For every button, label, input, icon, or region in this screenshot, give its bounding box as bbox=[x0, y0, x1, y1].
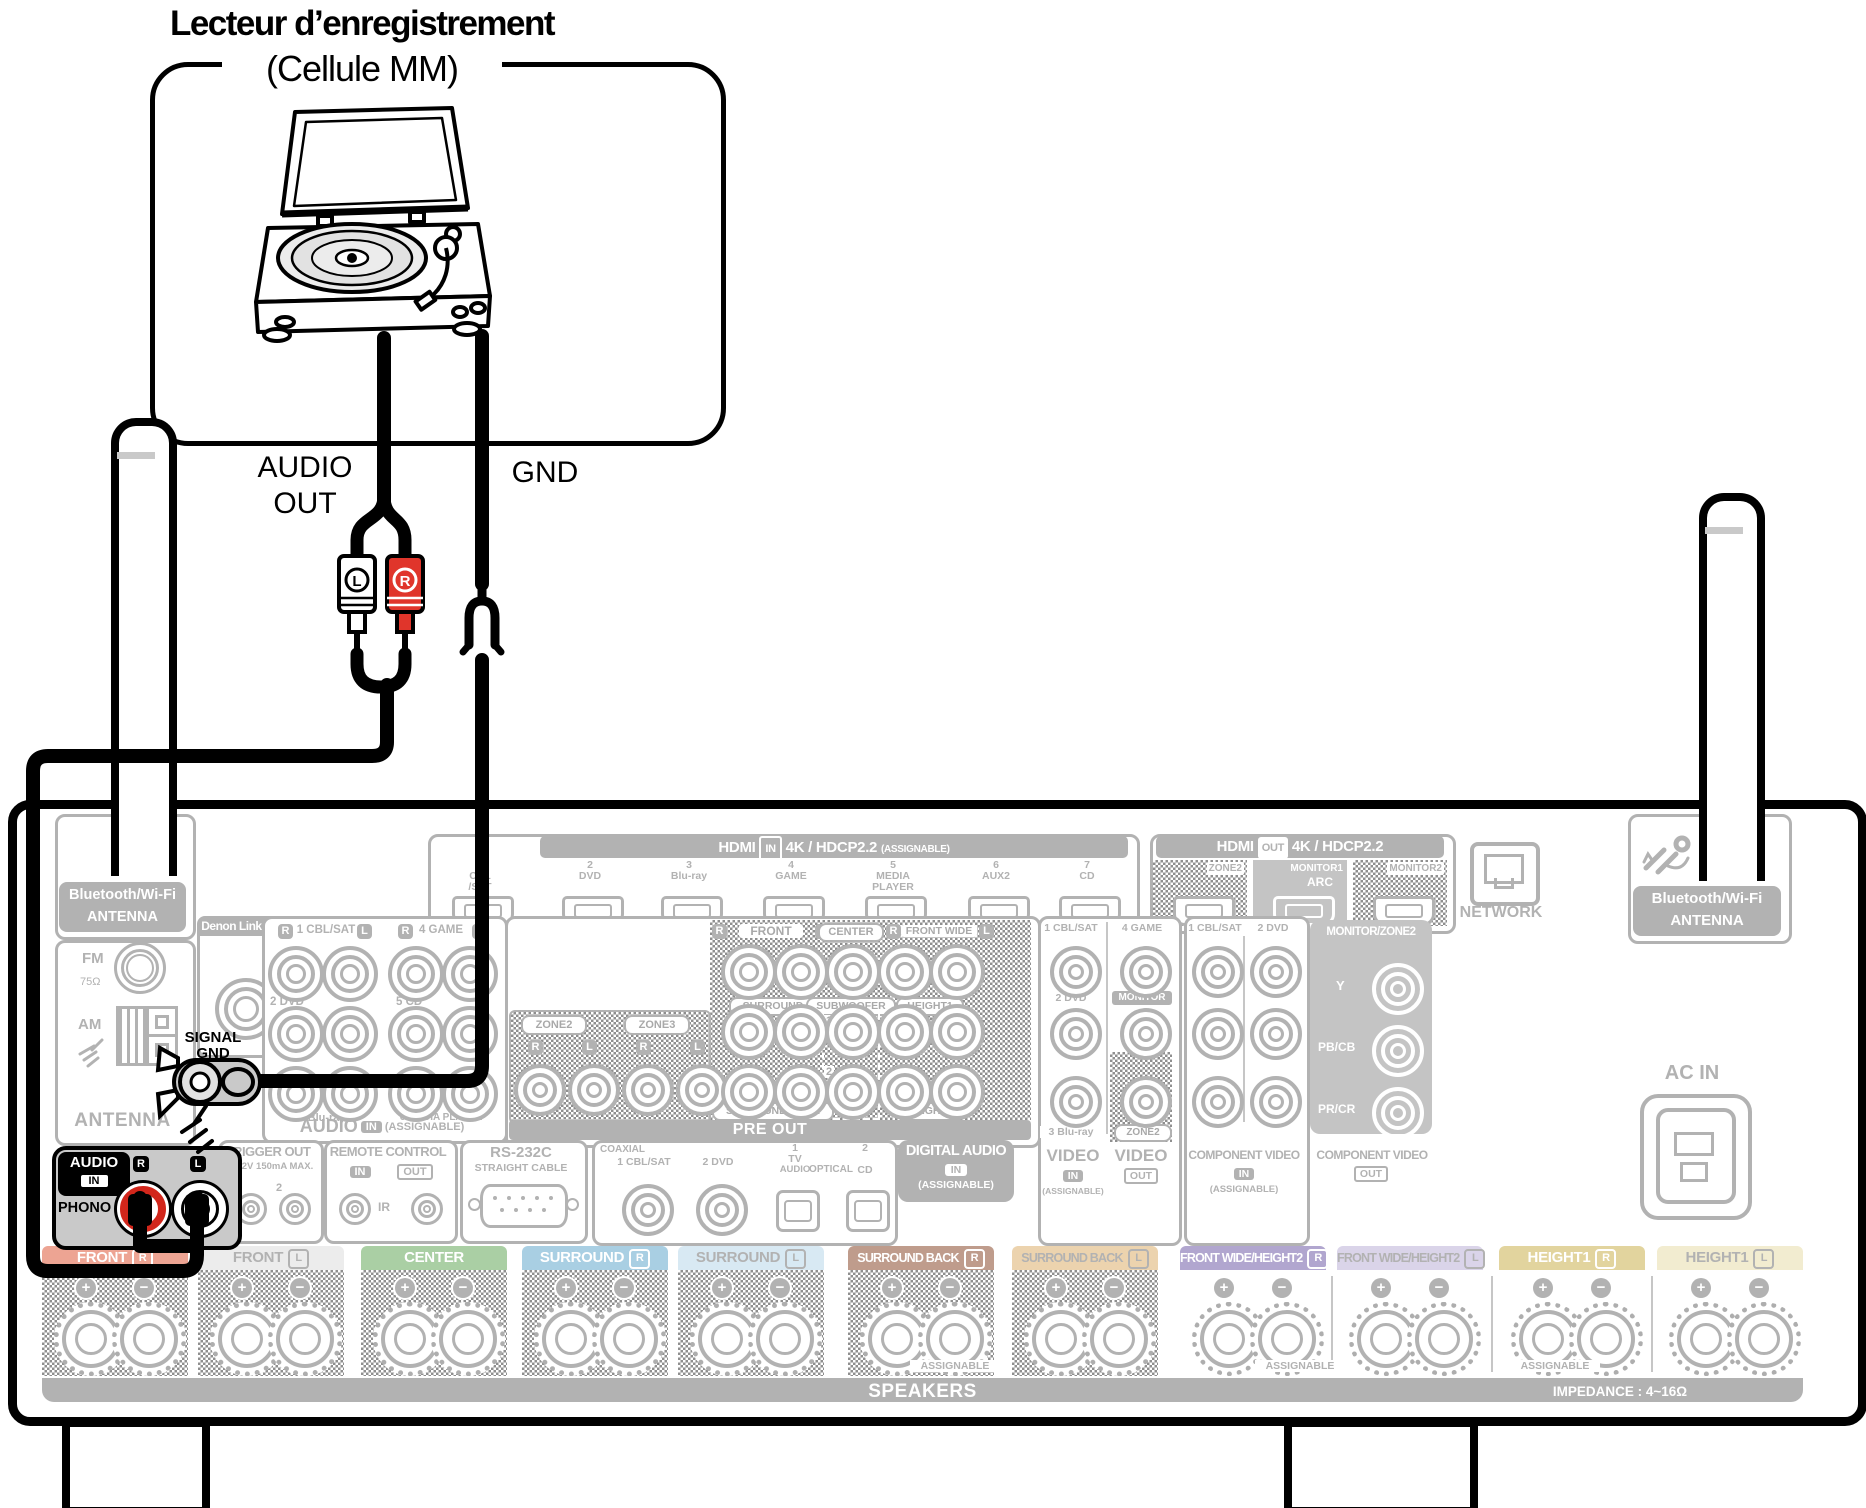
phono-plug-r bbox=[128, 1194, 152, 1226]
signal-gnd-terminal bbox=[158, 1048, 260, 1116]
rca-plug-right: R bbox=[387, 556, 423, 650]
ground-symbol-icon bbox=[182, 1106, 212, 1152]
svg-text:L: L bbox=[352, 573, 361, 590]
phono-plug-l bbox=[185, 1194, 209, 1226]
svg-text:R: R bbox=[400, 573, 411, 590]
rca-plug-left: L bbox=[339, 556, 375, 650]
connection-diagram: Lecteur d’enregistrement (Cellule MM) bbox=[0, 0, 1866, 1508]
cables-overlay: L R bbox=[0, 0, 1866, 1508]
